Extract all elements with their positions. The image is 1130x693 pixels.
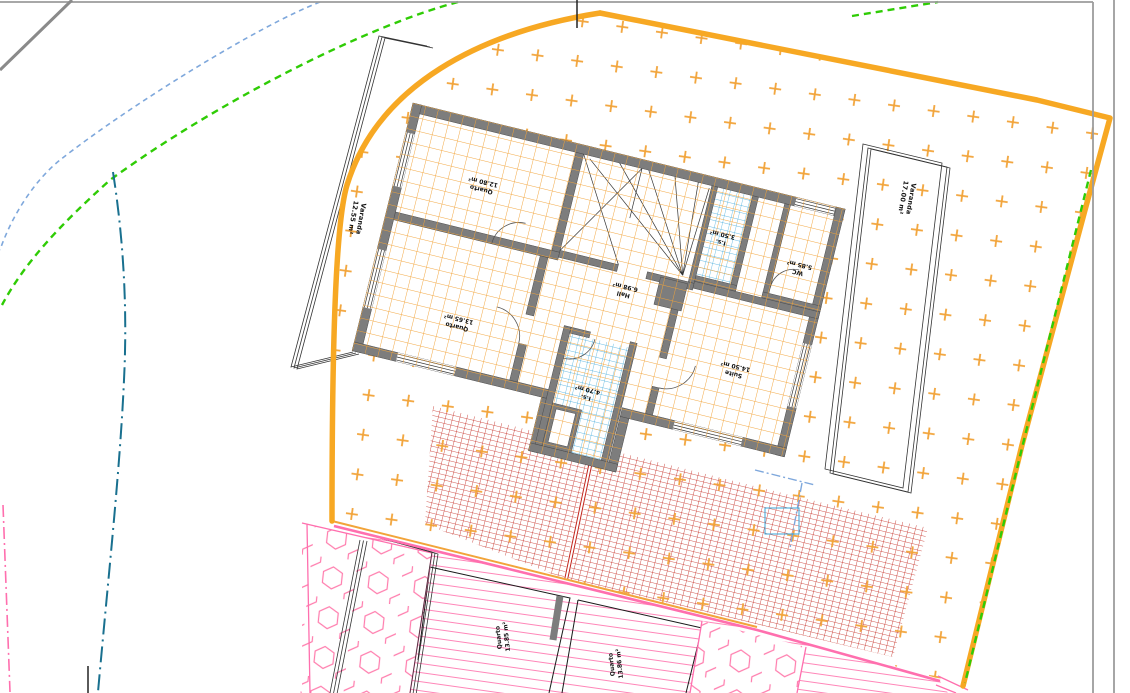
cad-drawing-viewport[interactable]: Quarto 13.85 m² Quarto 13.86 m² (0, 0, 1130, 693)
site-plan-drawing: Quarto 13.85 m² Quarto 13.86 m² (0, 0, 1130, 693)
pink-dashdot-left-edge (3, 505, 10, 692)
teal-dashdot-curve (98, 172, 125, 692)
green-dash-top-right (852, 2, 938, 16)
blue-dash-curve (0, 2, 320, 250)
